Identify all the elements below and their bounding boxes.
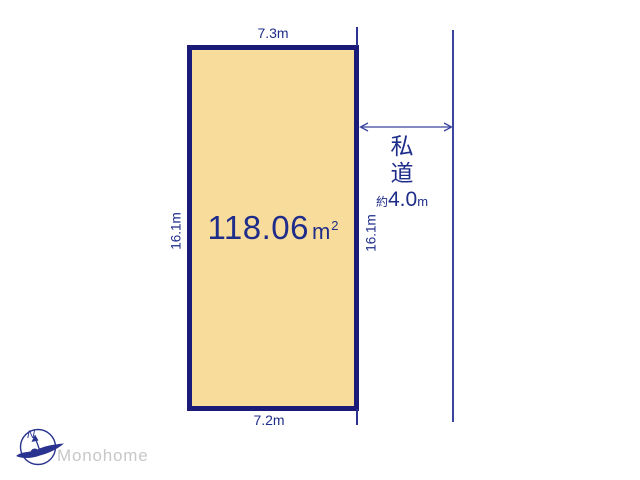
survey-tick-bottom [356, 409, 358, 425]
private-road-char-2: 道 [372, 160, 432, 187]
dimension-label-bottom: 7.2m [183, 412, 355, 428]
private-road-label: 私 道 [372, 133, 432, 187]
road-boundary-line [452, 30, 454, 422]
land-plot-shape: 118.06 m 2 [187, 45, 359, 411]
lot-diagram: 118.06 m 2 7.3m 7.2m 16.1m 16.1m 私 道 約4.… [0, 0, 640, 480]
road-width-arrow-icon [359, 121, 453, 133]
road-width-value: 4.0 [388, 188, 417, 211]
road-width-prefix: 約 [376, 195, 388, 209]
dimension-label-top: 7.3m [187, 25, 359, 41]
plot-area-label: 118.06 m 2 [207, 209, 338, 247]
plot-area-unit-exponent: 2 [331, 218, 338, 233]
private-road-width-label: 約4.0m [368, 188, 436, 212]
dimension-label-left: 16.1m [169, 212, 184, 250]
road-width-unit: m [417, 194, 428, 209]
plot-area-value: 118.06 [207, 209, 308, 247]
plot-area-unit: m [312, 219, 330, 245]
dimension-label-right: 16.1m [364, 214, 379, 252]
survey-tick-top [356, 27, 358, 46]
company-logo-text: Monohome [57, 446, 148, 466]
private-road-char-1: 私 [372, 133, 432, 160]
